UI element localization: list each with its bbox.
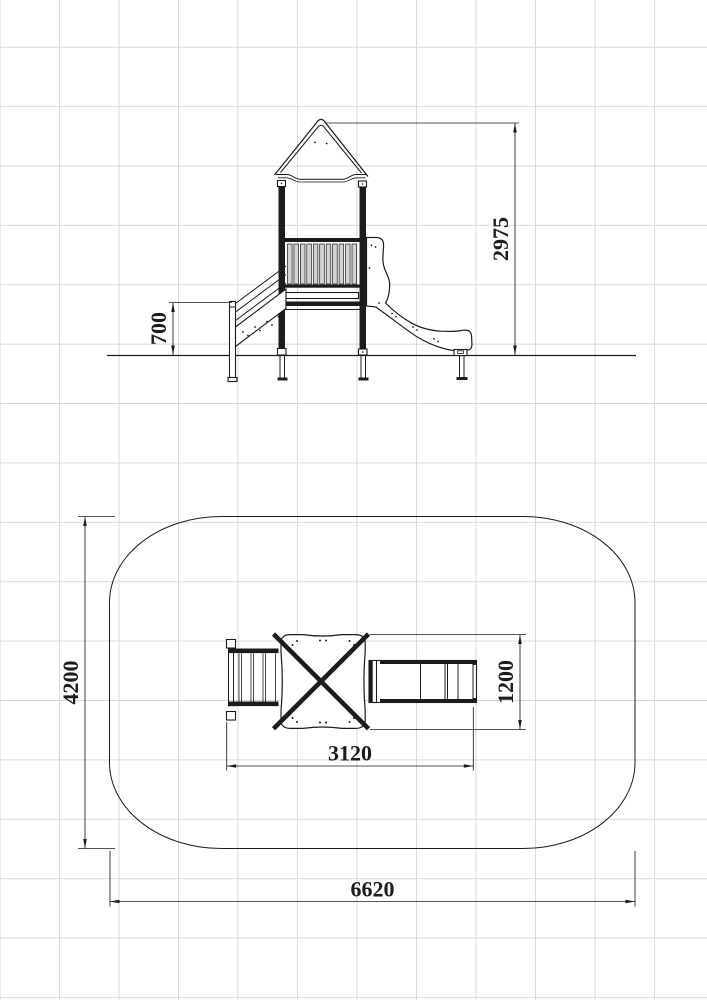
- dimension-label-700: 700: [146, 312, 171, 345]
- tower-roof: [275, 119, 369, 182]
- dimension-stair-height: 700: [146, 303, 232, 356]
- dimension-zone-length: 6620: [110, 851, 635, 907]
- platform-deck: [279, 293, 371, 310]
- dimension-zone-width: 4200: [58, 517, 115, 849]
- slide-plan: [369, 661, 477, 703]
- slide: [367, 238, 472, 356]
- dimension-label-3120: 3120: [328, 741, 372, 766]
- drawing-sheet: 2975 700: [0, 0, 707, 1000]
- tower-platform-plan: [274, 634, 369, 729]
- post-base-left: [278, 349, 287, 356]
- dimension-label-2975: 2975: [488, 217, 513, 261]
- foundation-posts: [278, 356, 468, 380]
- stair-handrail-post: [230, 302, 236, 382]
- stairs-plan: [227, 640, 279, 721]
- technical-drawing: 2975 700: [0, 0, 707, 1000]
- tower-post-right: [360, 187, 367, 349]
- elevation-view: 2975 700: [107, 119, 636, 381]
- dimension-label-1200: 1200: [493, 660, 518, 704]
- balustrade: [285, 238, 360, 288]
- plan-view: 4200 6620 3120 1200: [58, 517, 635, 907]
- staircase: [228, 266, 286, 382]
- dimension-label-6620: 6620: [351, 877, 395, 902]
- dimension-label-4200: 4200: [58, 661, 83, 705]
